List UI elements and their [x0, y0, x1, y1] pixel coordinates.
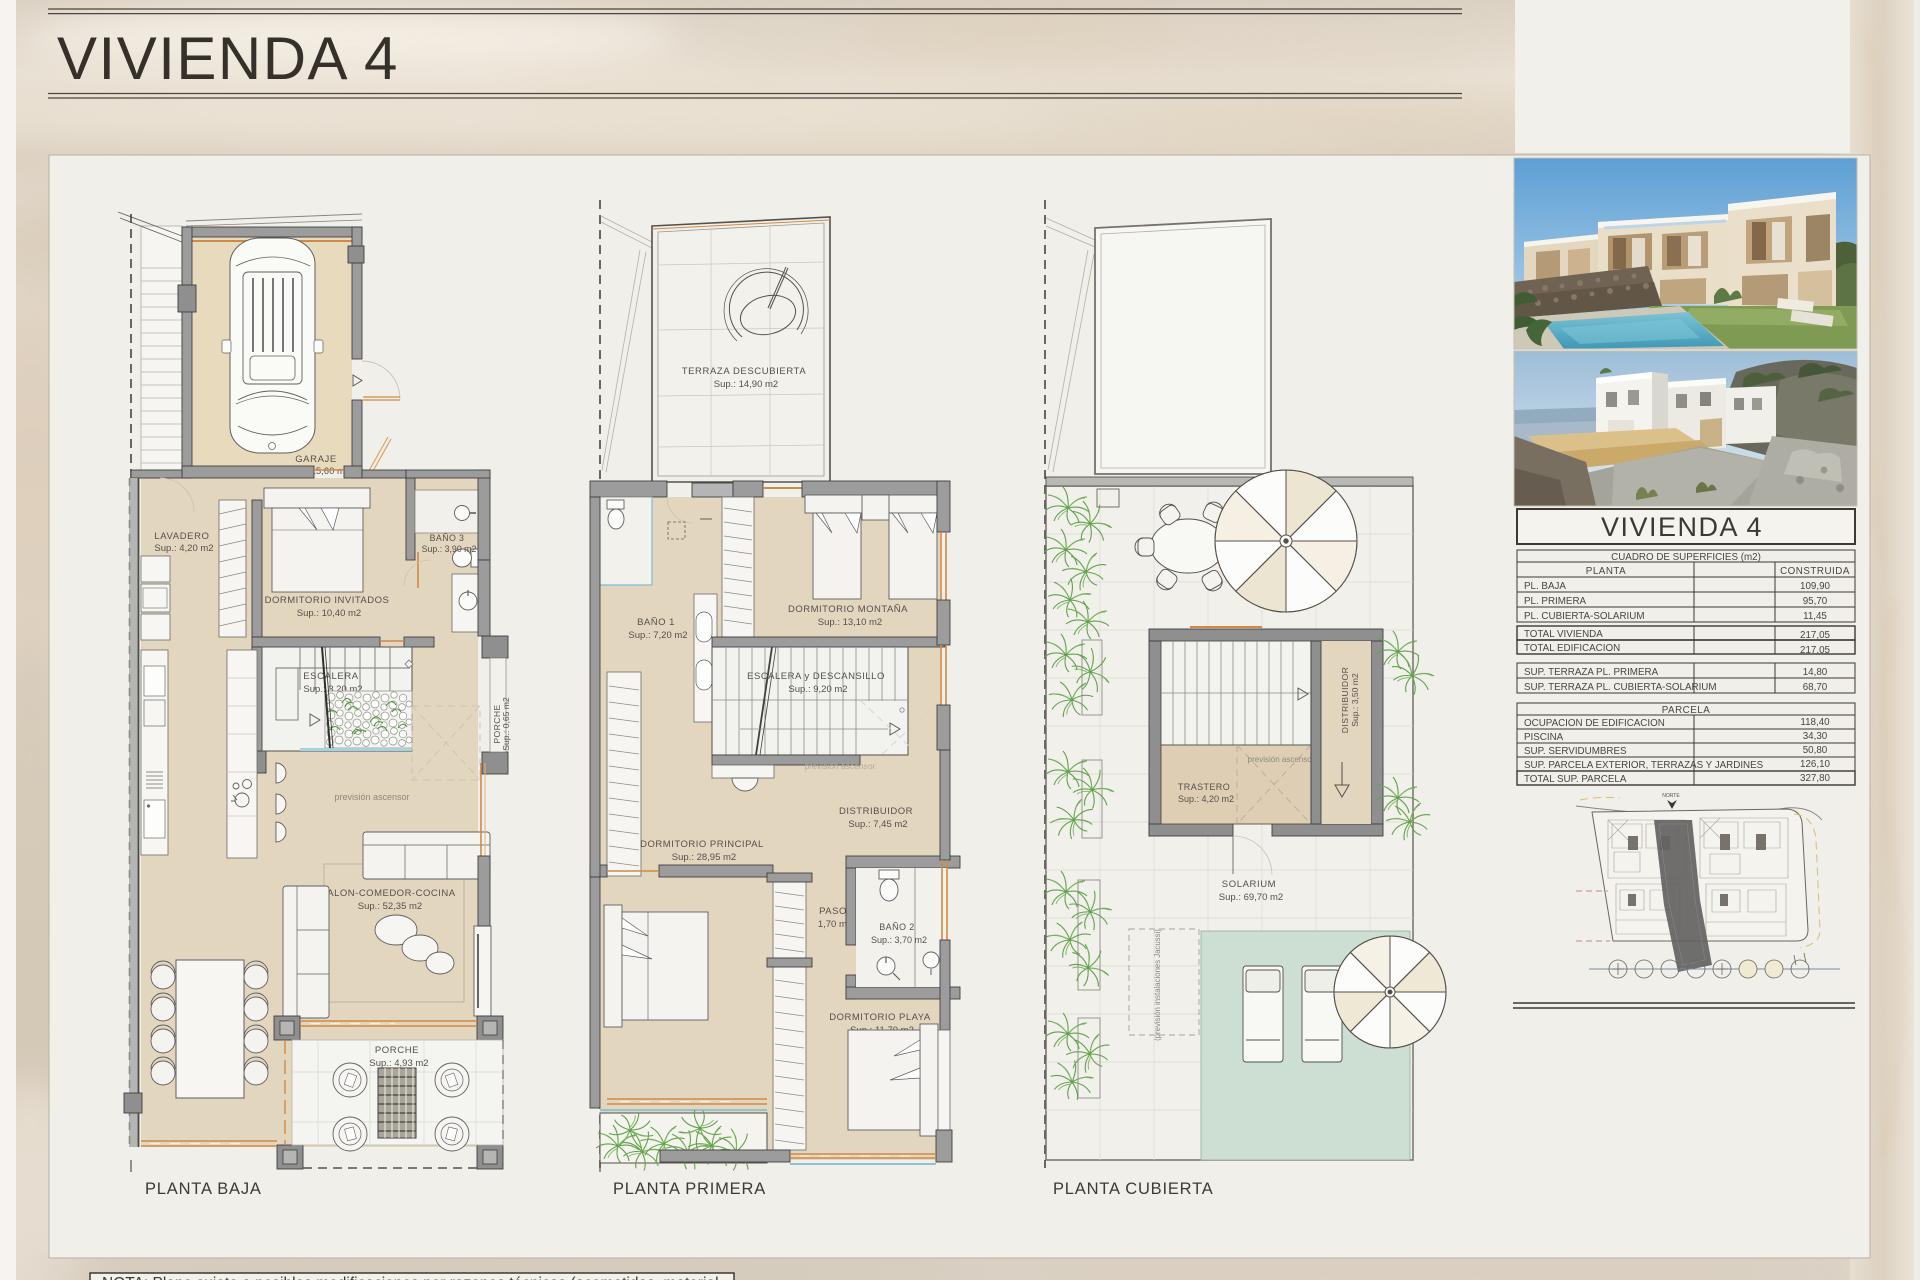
svg-text:LAVADERO: LAVADERO — [154, 531, 209, 542]
svg-text:BAÑO 2: BAÑO 2 — [879, 922, 914, 932]
svg-text:327,80: 327,80 — [1800, 773, 1831, 784]
svg-text:PORCHE: PORCHE — [375, 1045, 419, 1056]
svg-text:Sup.: 52,35 m2: Sup.: 52,35 m2 — [358, 901, 422, 912]
svg-text:Sup.: 7,45 m2: Sup.: 7,45 m2 — [848, 819, 907, 830]
svg-text:DORMITORIO PLAYA: DORMITORIO PLAYA — [829, 1012, 931, 1023]
svg-text:SOLARIUM: SOLARIUM — [1222, 879, 1276, 890]
svg-text:Sup.: 13,10 m2: Sup.: 13,10 m2 — [818, 617, 882, 628]
svg-text:68,70: 68,70 — [1803, 682, 1828, 693]
svg-text:SUP. TERRAZA PL. PRIMERA: SUP. TERRAZA PL. PRIMERA — [1524, 667, 1659, 678]
svg-text:Sup.: 3,90 m2: Sup.: 3,90 m2 — [422, 544, 477, 554]
svg-text:Sup.: 3,70 m2: Sup.: 3,70 m2 — [871, 935, 927, 945]
svg-text:PLANTA PRIMERA: PLANTA PRIMERA — [613, 1180, 766, 1198]
svg-text:previsión ascensor: previsión ascensor — [1248, 755, 1315, 764]
svg-text:PLANTA BAJA: PLANTA BAJA — [145, 1180, 262, 1198]
svg-text:Sup.: 28,95 m2: Sup.: 28,95 m2 — [672, 852, 736, 863]
svg-text:SUP. TERRAZA PL. CUBIERTA-SOLA: SUP. TERRAZA PL. CUBIERTA-SOLARIUM — [1524, 682, 1717, 693]
svg-text:34,30: 34,30 — [1803, 731, 1828, 742]
svg-text:CONSTRUIDA: CONSTRUIDA — [1780, 566, 1850, 577]
svg-text:Sup.: 14,90 m2: Sup.: 14,90 m2 — [714, 379, 778, 390]
svg-text:Sup.: 7,20 m2: Sup.: 7,20 m2 — [628, 630, 687, 641]
svg-text:(previsión instalaciones Jacus: (previsión instalaciones Jacussi) — [1153, 929, 1162, 1041]
svg-text:TOTAL EDIFICACION: TOTAL EDIFICACION — [1524, 643, 1620, 654]
svg-text:VIVIENDA 4: VIVIENDA 4 — [57, 25, 399, 92]
svg-text:217,05: 217,05 — [1800, 645, 1831, 656]
svg-text:Sup.: 69,70 m2: Sup.: 69,70 m2 — [1219, 892, 1283, 903]
svg-text:PARCELA: PARCELA — [1662, 705, 1711, 716]
svg-text:Sup.: 4,20 m2: Sup.: 4,20 m2 — [1178, 794, 1234, 804]
svg-text:DISTRIBUIDOR: DISTRIBUIDOR — [1340, 667, 1350, 733]
svg-text:ESCALERA y DESCANSILLO: ESCALERA y DESCANSILLO — [747, 671, 885, 682]
svg-text:109,90: 109,90 — [1800, 581, 1831, 592]
svg-text:CUADRO DE SUPERFICIES (m2): CUADRO DE SUPERFICIES (m2) — [1611, 552, 1761, 563]
svg-text:Sup.: 9,20 m2: Sup.: 9,20 m2 — [788, 684, 847, 695]
svg-text:126,10: 126,10 — [1800, 759, 1831, 770]
svg-text:TRASTERO: TRASTERO — [1178, 782, 1230, 792]
svg-text:Sup.: 4,20 m2: Sup.: 4,20 m2 — [154, 543, 213, 554]
svg-text:11,45: 11,45 — [1803, 611, 1827, 622]
svg-text:PISCINA: PISCINA — [1524, 732, 1564, 743]
svg-text:PLANTA: PLANTA — [1586, 566, 1626, 577]
svg-text:BAÑO 3: BAÑO 3 — [430, 533, 465, 543]
svg-text:TERRAZA DESCUBIERTA: TERRAZA DESCUBIERTA — [682, 366, 807, 377]
svg-text:14,80: 14,80 — [1803, 667, 1828, 678]
svg-text:PASO: PASO — [819, 906, 847, 917]
svg-text:NOTA: Plano sujeto a posibles: NOTA: Plano sujeto a posibles modificaci… — [102, 1275, 731, 1280]
svg-text:SUP. SERVIDUMBRES: SUP. SERVIDUMBRES — [1524, 746, 1627, 757]
svg-text:118,40: 118,40 — [1800, 717, 1830, 728]
svg-text:VIVIENDA 4: VIVIENDA 4 — [1601, 512, 1763, 542]
svg-text:DORMITORIO PRINCIPAL: DORMITORIO PRINCIPAL — [640, 839, 764, 850]
svg-text:BAÑO 1: BAÑO 1 — [637, 617, 675, 628]
svg-text:PL. BAJA: PL. BAJA — [1524, 581, 1566, 592]
svg-text:Sup.: 3,50 m2: Sup.: 3,50 m2 — [1350, 673, 1360, 727]
svg-text:SUP. PARCELA EXTERIOR, TERRAZA: SUP. PARCELA EXTERIOR, TERRAZAS Y JARDIN… — [1524, 760, 1764, 771]
svg-text:DORMITORIO INVITADOS: DORMITORIO INVITADOS — [265, 595, 390, 606]
svg-text:DISTRIBUIDOR: DISTRIBUIDOR — [839, 806, 913, 817]
svg-text:PLANTA CUBIERTA: PLANTA CUBIERTA — [1053, 1180, 1214, 1198]
svg-text:50,80: 50,80 — [1803, 745, 1828, 756]
svg-text:NORTE: NORTE — [1662, 793, 1680, 799]
svg-text:TOTAL VIVIENDA: TOTAL VIVIENDA — [1524, 629, 1603, 640]
svg-text:Sup.: 10,40 m2: Sup.: 10,40 m2 — [297, 608, 361, 619]
svg-text:PL. CUBIERTA-SOLARIUM: PL. CUBIERTA-SOLARIUM — [1524, 611, 1645, 622]
svg-text:Sup.: 4,93 m2: Sup.: 4,93 m2 — [369, 1058, 428, 1069]
svg-text:ESCALERA: ESCALERA — [303, 671, 359, 682]
svg-text:DORMITORIO MONTAÑA: DORMITORIO MONTAÑA — [788, 604, 908, 615]
svg-text:TOTAL SUP. PARCELA: TOTAL SUP. PARCELA — [1524, 774, 1627, 785]
svg-text:SALON-COMEDOR-COCINA: SALON-COMEDOR-COCINA — [320, 888, 455, 899]
svg-text:Sup.: 0,65 m2: Sup.: 0,65 m2 — [501, 697, 511, 751]
svg-text:95,70: 95,70 — [1803, 596, 1828, 607]
svg-text:previsión ascensor: previsión ascensor — [334, 792, 409, 802]
svg-text:OCUPACION DE EDIFICACION: OCUPACION DE EDIFICACION — [1524, 718, 1665, 729]
svg-text:PL. PRIMERA: PL. PRIMERA — [1524, 596, 1587, 607]
svg-text:previsión ascensor: previsión ascensor — [805, 761, 876, 771]
svg-text:GARAJE: GARAJE — [295, 454, 337, 465]
